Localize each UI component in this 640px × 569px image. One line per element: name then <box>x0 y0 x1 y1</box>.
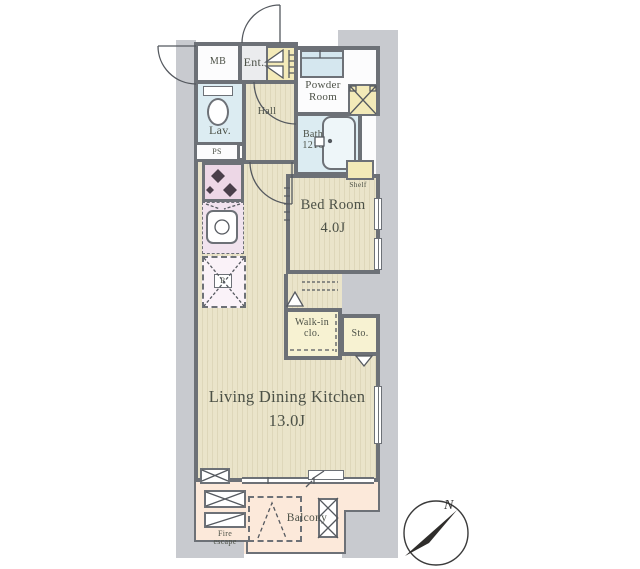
bedroom-name-label: Bed Room <box>288 196 378 214</box>
shelf-label: Shelf <box>340 181 376 190</box>
powder-room-label-line1: Powder <box>305 79 340 91</box>
compass-north-label: N <box>443 498 454 513</box>
sink-icon <box>206 210 238 244</box>
hall-label: Hall <box>246 106 288 118</box>
mb-label: MB <box>196 54 240 70</box>
wall-balcony-right-top <box>378 482 380 512</box>
powder-room-label-line2: Room <box>309 91 337 103</box>
bath-label-line2: 1216 <box>302 140 323 151</box>
closet-entry <box>284 274 342 312</box>
room-hall <box>242 80 298 164</box>
toilet-bowl-icon <box>207 98 229 126</box>
fire-escape-ladder-icon <box>204 512 246 528</box>
walk-in-closet-label: Walk-in clo. <box>286 316 338 340</box>
entrance-door-arc-icon <box>242 5 280 43</box>
entrance-label: Ent. <box>238 54 270 72</box>
pipe-space-label: PS <box>196 146 238 158</box>
fire-escape-label: Fire escape <box>198 529 252 547</box>
shelf-box <box>346 160 374 180</box>
wall-balcony-bottom <box>246 552 346 554</box>
wic-label-line2: clo. <box>304 328 320 339</box>
exterior-bottom-right <box>342 510 398 558</box>
wall-balcony-left <box>194 482 196 542</box>
balcony-label: Balcony <box>272 511 342 526</box>
wall-ldk-left <box>194 158 198 482</box>
floor-plan: MB Ent. Powder Room Lav. PS Hall Bath 12… <box>0 0 640 569</box>
storage-label: Sto. <box>342 327 378 341</box>
compass-icon: N <box>404 498 468 565</box>
wall-balcony-right <box>344 510 346 554</box>
washing-machine-icon <box>300 50 344 78</box>
ldk-hatch-icon <box>200 468 230 484</box>
powder-room-label: Powder Room <box>292 78 354 104</box>
bedroom-window-2 <box>374 238 382 270</box>
fire-escape-label-line2: escape <box>213 538 236 546</box>
exterior-left <box>176 40 196 556</box>
wic-label-line1: Walk-in <box>295 317 329 328</box>
ac-unit-icon <box>308 470 344 480</box>
balcony-floor-right <box>344 482 378 510</box>
fire-escape-hatch-icon <box>204 490 246 508</box>
exterior-mid-right-notch <box>340 272 380 318</box>
lavatory-label: Lav. <box>196 124 244 138</box>
wall-balcony-step-h <box>344 510 380 512</box>
ldk-size-label: 13.0J <box>196 411 378 431</box>
stove-icon <box>202 162 244 202</box>
bedroom-size-label: 4.0J <box>288 219 378 237</box>
toilet-tank-icon <box>203 86 233 96</box>
ldk-name-label: Living Dining Kitchen <box>196 387 378 407</box>
refrigerator-label: R <box>214 274 232 288</box>
bath-label: Bath 1216 <box>296 128 330 152</box>
bath-label-line1: Bath <box>303 129 323 140</box>
shoe-cabinet <box>266 46 296 82</box>
